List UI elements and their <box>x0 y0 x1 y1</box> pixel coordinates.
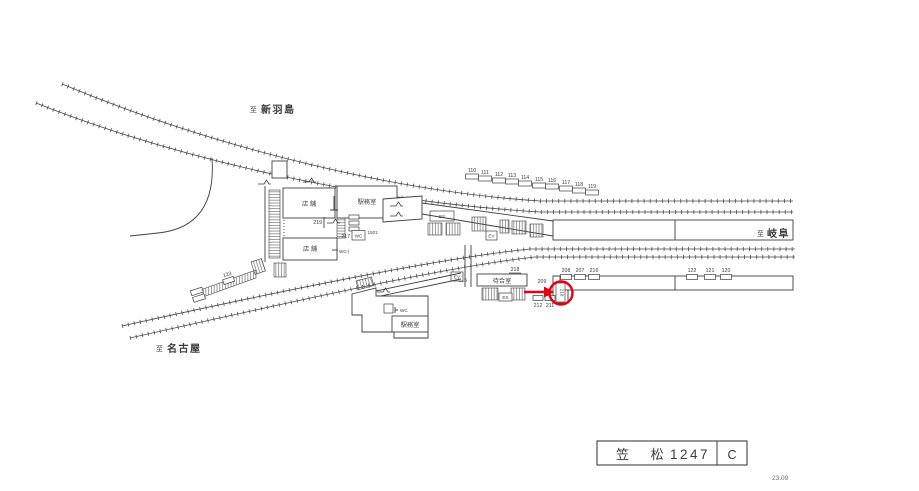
title-block: 笠 松 1247 C <box>597 441 747 465</box>
billboard-number: 113 <box>508 173 516 179</box>
destination-gifu: 岐阜 <box>767 227 790 240</box>
station-name: 笠 松 <box>616 447 673 462</box>
stairs-west <box>269 190 280 258</box>
billboard-number: 111 <box>481 170 489 176</box>
billboard-number: 120 <box>722 268 731 274</box>
wc-lower-label: WC <box>400 308 408 313</box>
waiting-room-area: 218 待合室 215 ES EV <box>451 267 527 301</box>
billboard-number: 122 <box>688 268 697 274</box>
destination-nagoya: 名古屋 <box>167 342 202 355</box>
billboard-box <box>575 275 586 280</box>
track-branch-line <box>36 84 793 212</box>
billboard-number: 212 <box>534 303 543 309</box>
billboard-box <box>721 275 732 280</box>
destination-prefix: 至 <box>250 106 257 114</box>
bridge-stairs <box>446 223 460 235</box>
ramp-structure <box>383 196 422 222</box>
slope-icon <box>258 180 271 184</box>
billboard-box <box>687 275 698 280</box>
billboard-group-right: 122 121 120 <box>687 268 732 280</box>
wc-mid-label: WC-| <box>339 249 349 254</box>
billboard-box <box>561 275 572 280</box>
billboard-box <box>533 183 546 188</box>
office-upper-label: 駅務室 <box>358 198 377 206</box>
track-main-line <box>122 249 795 338</box>
billboard-number: 209 <box>538 279 547 285</box>
bridge-stairs <box>500 220 509 233</box>
shop-upper-label: 店 舗 <box>302 200 316 208</box>
bridge-stairs <box>428 223 442 235</box>
destination-prefix: 至 <box>757 230 764 238</box>
billboard-box <box>573 188 586 193</box>
escalator-platform-label: ES <box>502 295 508 300</box>
billboard-number: 121 <box>706 268 715 274</box>
billboard-group-left: 208 207 216 <box>561 268 600 280</box>
billboard-box <box>506 179 519 184</box>
billboard-number: 112 <box>495 172 503 178</box>
ticket-gate <box>349 221 359 225</box>
south-wc-box <box>384 304 393 313</box>
billboard-number: 117 <box>562 180 570 186</box>
billboard-box <box>560 186 573 191</box>
billboard-number: 1501 <box>368 230 379 235</box>
billboard-box <box>546 184 559 189</box>
wc-upper-label: WC <box>355 234 363 239</box>
highlight-marker: 210 <box>524 282 573 305</box>
revision-date: 23.09 <box>772 475 789 482</box>
destination-prefix: 至 <box>156 345 163 353</box>
south-ramp <box>356 277 374 290</box>
sheet-number: 1247 <box>670 447 710 462</box>
destination-shin-hashima: 新羽島 <box>261 103 296 116</box>
overpass-bridge: ES EV <box>383 196 553 287</box>
billboard-number: 208 <box>562 268 571 274</box>
bridge-stairs <box>530 224 543 237</box>
billboard-number: 114 <box>521 175 529 181</box>
billboard-number: 211 <box>546 303 554 309</box>
elevator-platform-label: EV <box>454 275 461 280</box>
billboard-box <box>519 181 532 186</box>
billboard-box <box>586 190 599 195</box>
elevator-bridge-label: EV <box>488 234 495 239</box>
platform-stairs <box>511 288 525 300</box>
billboard-number: 110 <box>468 168 476 174</box>
west-walkway: 123 <box>190 259 265 303</box>
stairs-southwest <box>274 263 286 277</box>
billboard-box <box>479 176 492 181</box>
billboard-number: 118 <box>575 182 583 188</box>
shop-lower-label: 店 舗 <box>303 245 317 253</box>
grade-code: C <box>727 448 736 462</box>
billboard-number: 217 <box>341 234 350 240</box>
entrance-canopy <box>272 161 287 178</box>
bridge-stairs <box>512 221 526 234</box>
billboard-number: 119 <box>588 184 596 190</box>
waiting-room-label: 待合室 <box>493 277 512 285</box>
billboard-box <box>705 275 716 280</box>
office-lower-label: 駅務室 <box>401 321 420 329</box>
station-building-south: WC 駅務室 <box>352 273 461 338</box>
billboard-number: 216 <box>590 268 599 274</box>
billboard-number: 219 <box>313 220 322 226</box>
billboard-number: 116 <box>548 178 556 184</box>
billboard-box <box>493 178 506 183</box>
ticket-gate <box>349 215 359 219</box>
billboard-box <box>589 275 600 280</box>
billboard-box <box>533 296 543 301</box>
billboard-number: 115 <box>535 177 543 183</box>
platform-stairs <box>482 288 498 300</box>
billboard-number: 207 <box>576 268 585 274</box>
kasamatsu-station-map: 123 ES EV 至 岐阜 110 111 112 <box>0 0 919 491</box>
slope-icon <box>303 178 316 182</box>
plaza-boundary <box>130 158 212 236</box>
billboard-number: 218 <box>511 267 520 273</box>
bridge-stairs <box>472 217 486 231</box>
platform-upper: 至 岐阜 <box>553 220 793 240</box>
billboard-row-upper: 110 111 112 113 114 115 116 117 118 119 <box>466 168 599 195</box>
circled-billboard-number: 210 <box>560 289 565 297</box>
billboard-box <box>466 174 479 179</box>
station-layout-drawing: 123 ES EV 至 岐阜 110 111 112 <box>0 0 919 491</box>
